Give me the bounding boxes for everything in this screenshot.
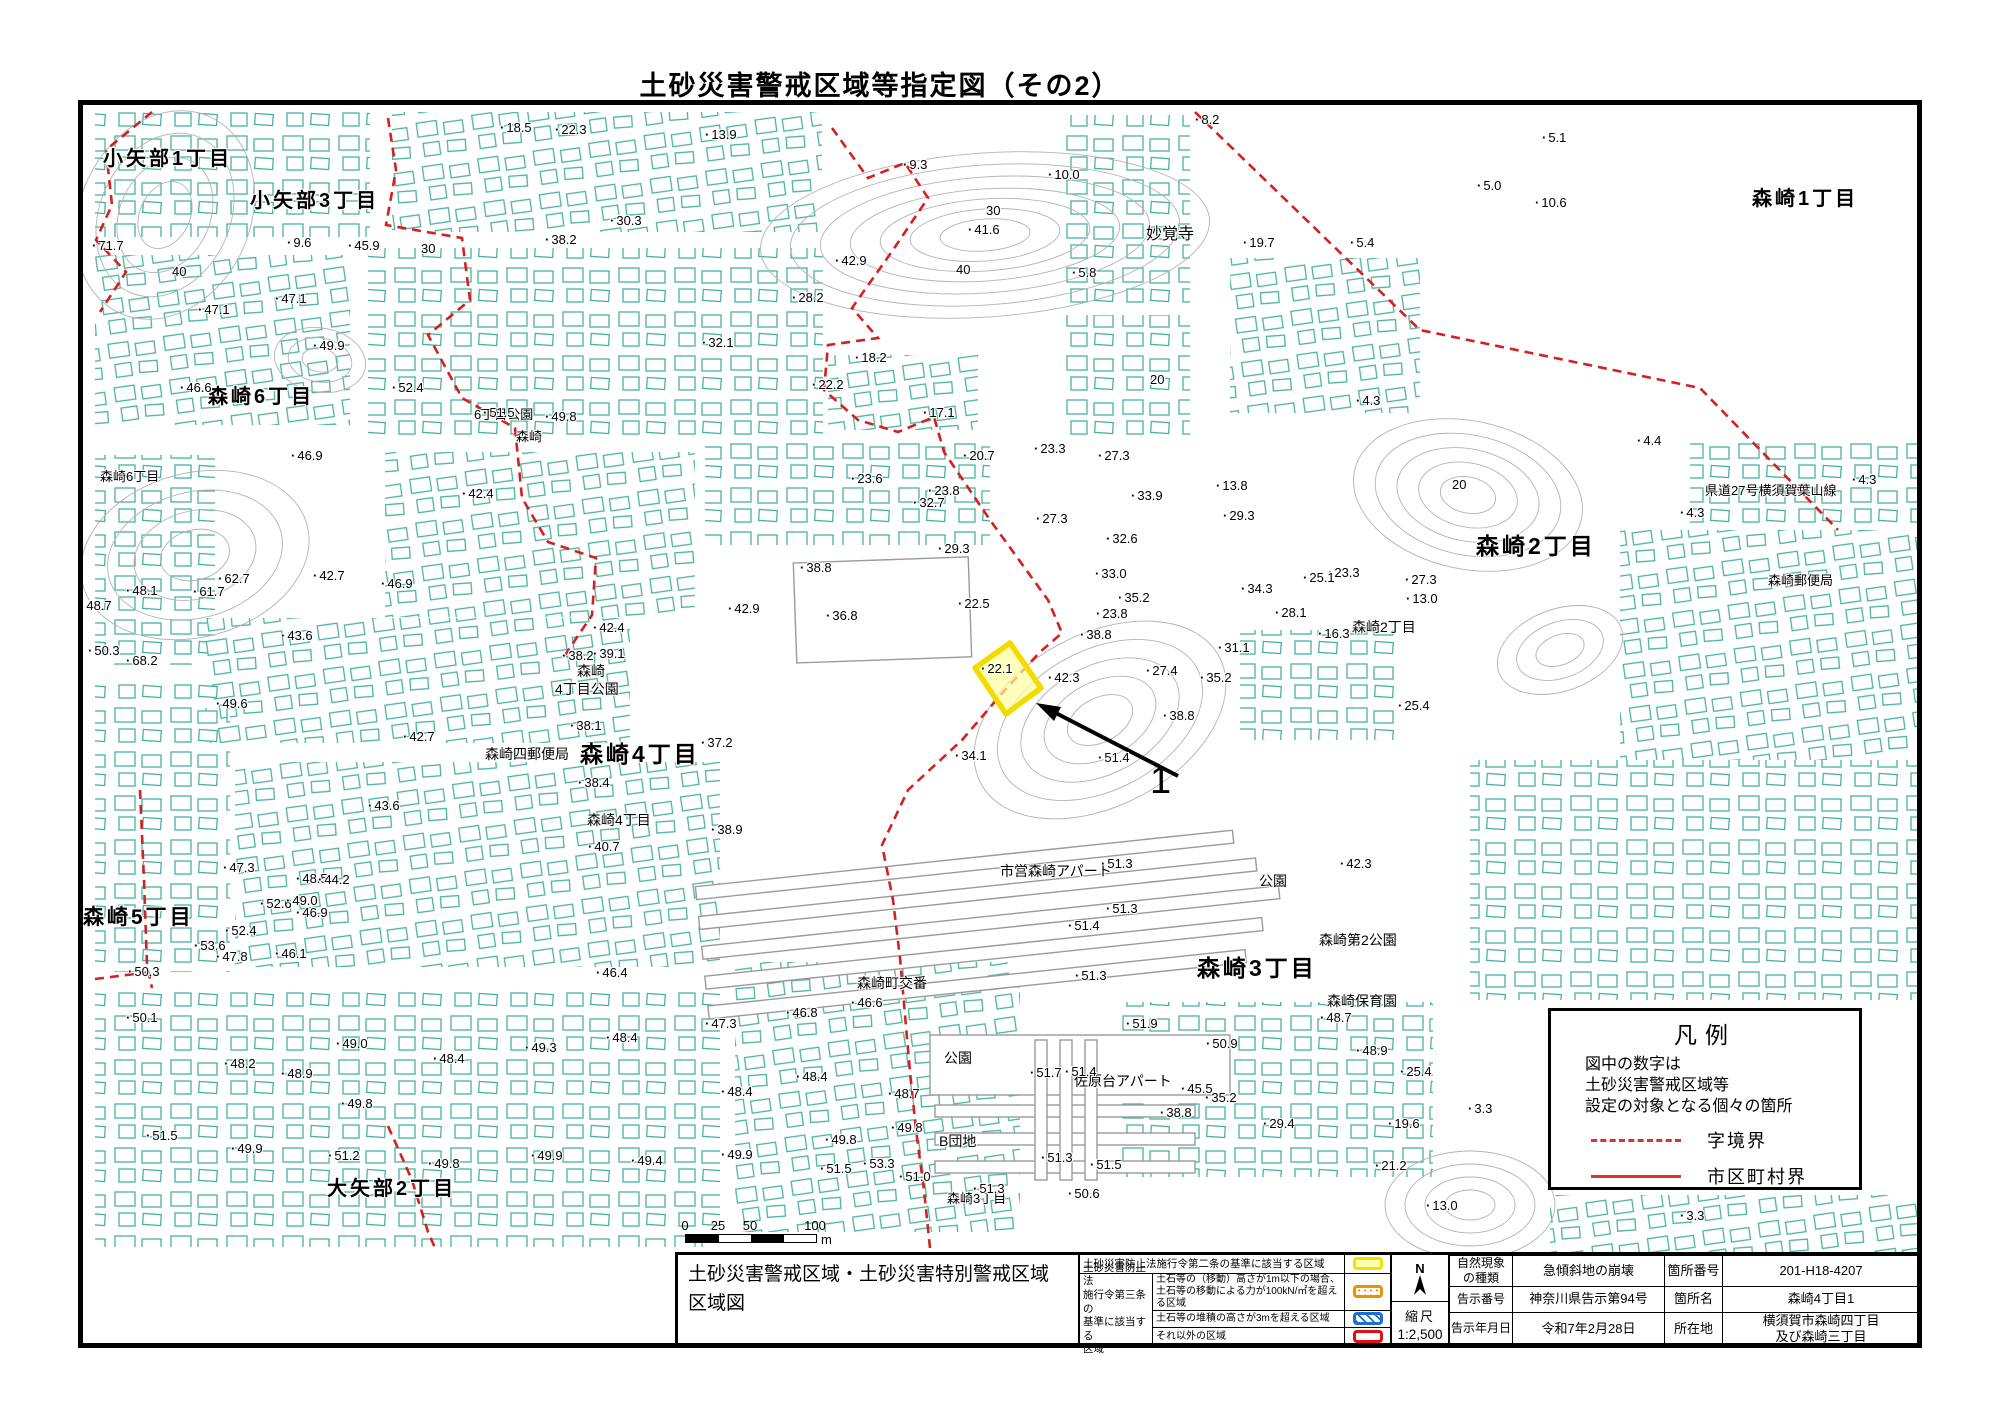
spot-height-label: 50.9 xyxy=(1206,1036,1238,1051)
spot-height-label: 48.7 xyxy=(80,598,112,613)
spot-height-label: 48.9 xyxy=(281,1066,313,1081)
scale-segment xyxy=(784,1235,817,1242)
place-label: 市営森崎アパート xyxy=(1000,864,1112,879)
footer-title-line2: 区域図 xyxy=(688,1289,1068,1318)
legend-item: 市区町村界 xyxy=(1591,1163,1859,1189)
spot-height-label: 32.1 xyxy=(702,335,734,350)
map-labels-layer: 小矢部1丁目 小矢部3丁目 森崎1丁目 妙覚寺 森崎6丁目 森崎6丁目 6丁目公… xyxy=(0,0,2000,1414)
spot-height-label: 38.9 xyxy=(711,822,743,837)
spot-height-label: 46.9 xyxy=(381,576,413,591)
zone-row-swatch-cell xyxy=(1344,1310,1390,1328)
info-key-cell: 告示年月日 xyxy=(1450,1312,1512,1346)
spot-height-label: 22.2 xyxy=(812,377,844,392)
place-label: 大矢部2丁目 xyxy=(327,1178,456,1200)
scale-segment xyxy=(686,1235,719,1242)
place-label: 森崎3丁目 xyxy=(1197,956,1317,981)
spot-height-label: 51.7 xyxy=(1030,1065,1062,1080)
place-label: 森崎6丁目 xyxy=(100,470,159,484)
spot-height-label: 49.6 xyxy=(216,696,248,711)
north-arrow-icon xyxy=(1412,1275,1428,1295)
spot-height-label: 53.3 xyxy=(863,1156,895,1171)
place-label: 森崎6丁目 xyxy=(208,386,314,408)
spot-height-label: 13.0 xyxy=(1406,591,1438,606)
spot-height-label: 47.8 xyxy=(216,949,248,964)
place-label: 県道27号横須賀葉山線 xyxy=(1705,484,1836,498)
spot-height-label: 34.3 xyxy=(1241,581,1273,596)
spot-height-label: 48.2 xyxy=(224,1056,256,1071)
spot-height-label: 40.7 xyxy=(588,839,620,854)
zone-row-swatch-cell xyxy=(1344,1327,1390,1345)
page-title: 土砂災害警戒区域等指定図（その2） xyxy=(620,64,1140,103)
spot-height-label: 43.6 xyxy=(281,628,313,643)
info-value-cell: 横須賀市森崎四丁目 及び森崎三丁目 xyxy=(1722,1312,1919,1346)
scale-tick-label: 50 xyxy=(743,1218,757,1233)
spot-height-label: 42.3 xyxy=(1048,670,1080,685)
info-value-cell: 急傾斜地の崩壊 xyxy=(1512,1255,1664,1286)
scale-tick-label: 0 xyxy=(681,1218,688,1233)
spot-height-label: 49.8 xyxy=(825,1132,857,1147)
spot-height-label: 9.6 xyxy=(287,235,311,250)
spot-height-label: 50.1 xyxy=(126,1010,158,1025)
spot-height-label: 5.8 xyxy=(1072,265,1096,280)
footer-title-cell: 土砂災害警戒区域・土砂災害特別警戒区域 区域図 xyxy=(678,1255,1080,1345)
spot-height-label: 52.4 xyxy=(392,380,424,395)
spot-height-label: 48.4 xyxy=(433,1051,465,1066)
spot-height-label: 42.7 xyxy=(313,568,345,583)
place-label: 森崎2丁目 xyxy=(1476,534,1596,559)
scale-bar: 0 25 50 100 m xyxy=(683,1218,903,1252)
info-value-cell: 201-H18-4207 xyxy=(1722,1255,1919,1286)
spot-height-label: 42.3 xyxy=(1340,856,1372,871)
spot-height-label: 39.1 xyxy=(593,646,625,661)
spot-height-label: 51.3 xyxy=(1101,856,1133,871)
spot-height-label: 38.8 xyxy=(1080,627,1112,642)
info-key-cell: 自然現象 の種類 xyxy=(1450,1255,1512,1286)
spot-height-label: 29.3 xyxy=(938,541,970,556)
zone-swatch xyxy=(1353,1312,1383,1325)
scale-segment xyxy=(751,1235,784,1242)
place-label: 小矢部1丁目 xyxy=(103,148,232,170)
spot-height-label: 29.3 xyxy=(1223,508,1255,523)
spot-height-label: 45.9 xyxy=(348,238,380,253)
spot-height-label: 37.2 xyxy=(701,735,733,750)
legend-title: 凡例 xyxy=(1551,1016,1859,1050)
spot-height-label: 51.3 xyxy=(973,1181,1005,1196)
spot-height-label: 50.6 xyxy=(1068,1186,1100,1201)
spot-height-label: 28.2 xyxy=(792,290,824,305)
spot-height-label: 27.3 xyxy=(1036,511,1068,526)
spot-height-label: 47.3 xyxy=(223,860,255,875)
spot-height-label: 49.9 xyxy=(313,338,345,353)
spot-height-label: 46.8 xyxy=(786,1005,818,1020)
spot-height-label: 31.1 xyxy=(1218,640,1250,655)
spot-height-label: 4.4 xyxy=(1637,433,1661,448)
spot-height-label: 38.8 xyxy=(1160,1105,1192,1120)
spot-height-label: 5.1 xyxy=(1542,130,1566,145)
scale-value: 1:2,500 xyxy=(1397,1327,1442,1342)
place-label: 森崎1丁目 xyxy=(1752,188,1858,210)
scale-bar-segments xyxy=(685,1234,817,1243)
spot-height-label: 47.1 xyxy=(198,302,230,317)
spot-height-label: 30 xyxy=(986,203,1000,218)
spot-height-label: 32.6 xyxy=(1106,531,1138,546)
place-label: 森崎5丁目 xyxy=(83,906,194,929)
spot-height-label: 17.1 xyxy=(923,405,955,420)
spot-height-label: 35.2 xyxy=(1205,1090,1237,1105)
notice-info-table: 自然現象 の種類 急傾斜地の崩壊 箇所番号 201-H18-4207 告示番号 … xyxy=(1450,1255,1919,1345)
spot-height-label: 27.3 xyxy=(1405,572,1437,587)
place-label: 森崎第2公園 xyxy=(1319,933,1397,948)
spot-height-label: 4.3 xyxy=(1356,393,1380,408)
info-key-cell: 告示番号 xyxy=(1450,1286,1512,1312)
legend-item: 字境界 xyxy=(1591,1127,1859,1153)
spot-height-label: 47.1 xyxy=(275,291,307,306)
spot-height-label: 13.9 xyxy=(705,127,737,142)
legend-item-label: 市区町村界 xyxy=(1707,1163,1807,1189)
zone-legend: 土砂災害防止法施行令第二条の基準に該当する区域 土砂災害防止法 施行令第三条の … xyxy=(1080,1255,1392,1345)
spot-height-label: 42.4 xyxy=(593,620,625,635)
spot-height-label: 5.0 xyxy=(1477,178,1501,193)
spot-height-label: 46.9 xyxy=(296,905,328,920)
spot-height-label: 22.1 xyxy=(981,661,1013,676)
spot-height-label: 51.3 xyxy=(1075,968,1107,983)
spot-height-label: 61.7 xyxy=(193,584,225,599)
spot-height-label: 25.4 xyxy=(1398,698,1430,713)
spot-height-label: 49.4 xyxy=(631,1153,663,1168)
spot-height-label: 42.7 xyxy=(403,729,435,744)
spot-height-label: 35.2 xyxy=(1200,670,1232,685)
zone-swatch-yellow xyxy=(1353,1257,1383,1270)
footer-table: 土砂災害警戒区域・土砂災害特別警戒区域 区域図 土砂災害防止法施行令第二条の基準… xyxy=(675,1252,1922,1348)
place-label: B団地 xyxy=(939,1134,976,1149)
info-value-cell: 森崎4丁目1 xyxy=(1722,1286,1919,1312)
spot-height-label: 19.7 xyxy=(1243,235,1275,250)
spot-height-label: 48.4 xyxy=(606,1030,638,1045)
spot-height-label: 51.4 xyxy=(1068,918,1100,933)
spot-height-label: 13.8 xyxy=(1216,478,1248,493)
zone-swatch xyxy=(1353,1285,1383,1298)
spot-height-label: 49.9 xyxy=(531,1148,563,1163)
spot-height-label: 36.8 xyxy=(826,608,858,623)
place-label: 森崎町交番 xyxy=(857,976,927,991)
zone-group-label: 土砂災害防止法 施行令第三条の 基準に該当する 区域 xyxy=(1080,1273,1152,1345)
spot-height-label: 25.4 xyxy=(1400,1064,1432,1079)
scale-tick-label: 25 xyxy=(711,1218,725,1233)
spot-height-label: 40 xyxy=(956,262,970,277)
spot-height-label: 51.5 xyxy=(820,1161,852,1176)
spot-height-label: 46.6 xyxy=(851,995,883,1010)
spot-height-label: 46.4 xyxy=(596,965,628,980)
spot-height-label: 5.4 xyxy=(1350,235,1374,250)
spot-height-label: 18.2 xyxy=(855,350,887,365)
scale-unit: m xyxy=(821,1232,832,1247)
place-label: 森崎4丁目 xyxy=(580,742,700,767)
info-value-cell: 令和7年2月28日 xyxy=(1512,1312,1664,1346)
spot-height-label: 68.2 xyxy=(126,653,158,668)
spot-height-label: 38.1 xyxy=(570,718,602,733)
place-label: 森崎郵便局 xyxy=(1768,574,1833,588)
place-label: 妙覚寺 xyxy=(1146,226,1194,244)
spot-height-label: 49.8 xyxy=(428,1156,460,1171)
spot-height-label: 42.9 xyxy=(728,601,760,616)
spot-height-label: 49.9 xyxy=(721,1147,753,1162)
spot-height-label: 43.6 xyxy=(368,798,400,813)
footer-title-line1: 土砂災害警戒区域・土砂災害特別警戒区域 xyxy=(688,1260,1068,1289)
scale-segment xyxy=(719,1235,752,1242)
spot-height-label: 51.9 xyxy=(1126,1016,1158,1031)
place-label: 森崎 xyxy=(516,430,542,444)
zone-row-label: 土石等の堆積の高さが3mを超える区域 xyxy=(1152,1310,1344,1328)
spot-height-label: 16.3 xyxy=(1318,626,1350,641)
spot-height-label: 9.3 xyxy=(903,157,927,172)
spot-height-label: 23.3 xyxy=(1034,441,1066,456)
spot-height-label: 51.4 xyxy=(1065,1064,1097,1079)
legend-line-sample xyxy=(1591,1139,1681,1142)
spot-height-label: 22.3 xyxy=(555,122,587,137)
legend-note: 図中の数字は 土砂災害警戒区域等 設定の対象となる個々の箇所 xyxy=(1585,1054,1859,1117)
scale-tick-label: 100 xyxy=(804,1218,826,1233)
spot-height-label: 50.3 xyxy=(128,964,160,979)
spot-height-label: 38.2 xyxy=(562,648,594,663)
spot-height-label: 8.2 xyxy=(1195,112,1219,127)
spot-height-label: 3.3 xyxy=(1468,1101,1492,1116)
info-key-cell: 箇所番号 xyxy=(1664,1255,1722,1286)
spot-height-label: 21.2 xyxy=(1375,1158,1407,1173)
spot-height-label: 48.4 xyxy=(796,1069,828,1084)
spot-height-label: 30.3 xyxy=(610,213,642,228)
spot-height-label: 27.3 xyxy=(1098,448,1130,463)
spot-height-label: 48.7 xyxy=(1320,1010,1352,1025)
zone-row1-swatch-cell xyxy=(1344,1255,1390,1273)
place-label: 公園 xyxy=(944,1051,972,1066)
spot-height-label: 20 xyxy=(1452,477,1466,492)
spot-height-label: 49.3 xyxy=(525,1040,557,1055)
spot-height-label: 51.5 xyxy=(483,405,515,420)
spot-height-label: 38.4 xyxy=(578,775,610,790)
zone-row-swatch-cell xyxy=(1344,1273,1390,1310)
spot-height-label: 49.9 xyxy=(231,1141,263,1156)
spot-height-label: 48.9 xyxy=(1356,1043,1388,1058)
spot-height-label: 20.7 xyxy=(963,448,995,463)
spot-height-label: 38.8 xyxy=(1163,708,1195,723)
spot-height-label: 42.4 xyxy=(462,486,494,501)
spot-height-label: 48.1 xyxy=(126,583,158,598)
spot-height-label: 51.5 xyxy=(146,1128,178,1143)
place-label: 森崎2丁目 xyxy=(1352,620,1416,635)
spot-height-label: 22.5 xyxy=(958,596,990,611)
spot-height-label: 48.7 xyxy=(888,1086,920,1101)
info-value-cell: 神奈川県告示第94号 xyxy=(1512,1286,1664,1312)
spot-height-label: 20 xyxy=(1150,372,1164,387)
north-indicator: N xyxy=(1392,1255,1448,1302)
spot-height-label: 71.7 xyxy=(92,238,124,253)
spot-height-label: 19.6 xyxy=(1388,1116,1420,1131)
spot-height-label: 34.1 xyxy=(955,748,987,763)
legend-item-list: 字境界 市区町村界 xyxy=(1551,1127,1859,1189)
spot-height-label: 10.6 xyxy=(1535,195,1567,210)
zone-row-label: それ以外の区域 xyxy=(1152,1327,1344,1345)
spot-height-label: 51.2 xyxy=(328,1148,360,1163)
spot-height-label: 49.8 xyxy=(545,409,577,424)
info-key-cell: 箇所名 xyxy=(1664,1286,1722,1312)
spot-height-label: 4.3 xyxy=(1852,472,1876,487)
zone-row-label: 土石等の（移動）高さが1m以下の場合、 土石等の移動による力が100kN/㎡を超… xyxy=(1152,1273,1344,1310)
spot-height-label: 51.4 xyxy=(1098,750,1130,765)
spot-height-label: 25.1 xyxy=(1303,570,1335,585)
spot-height-label: 46.9 xyxy=(291,448,323,463)
spot-height-label: 49.0 xyxy=(336,1036,368,1051)
spot-height-label: 51.5 xyxy=(1090,1157,1122,1172)
spot-height-label: 44.2 xyxy=(318,872,350,887)
scale-label: 縮尺 xyxy=(1405,1306,1435,1325)
zone-swatch xyxy=(1353,1330,1383,1343)
spot-height-label: 46.1 xyxy=(275,946,307,961)
place-label: 4丁目公園 xyxy=(555,682,619,697)
spot-height-label: 47.3 xyxy=(705,1016,737,1031)
north-label: N xyxy=(1415,1262,1424,1275)
spot-height-label: 18.5 xyxy=(500,120,532,135)
spot-height-label: 50.3 xyxy=(88,643,120,658)
info-key-cell: 所在地 xyxy=(1664,1312,1722,1346)
legend-line-sample xyxy=(1591,1175,1681,1178)
spot-height-label: 33.9 xyxy=(1131,488,1163,503)
spot-height-label: 42.9 xyxy=(835,253,867,268)
spot-height-label: 29.4 xyxy=(1263,1116,1295,1131)
place-label: 公園 xyxy=(1259,874,1287,889)
map-legend-box: 凡例 図中の数字は 土砂災害警戒区域等 設定の対象となる個々の箇所 字境界 市区… xyxy=(1548,1008,1862,1190)
spot-height-label: 27.4 xyxy=(1146,663,1178,678)
spot-height-label: 13.0 xyxy=(1426,1198,1458,1213)
spot-height-label: 49.8 xyxy=(891,1120,923,1135)
place-label: 森崎4丁目 xyxy=(587,813,651,828)
spot-height-label: 62.7 xyxy=(218,571,250,586)
spot-height-label: 28.1 xyxy=(1275,605,1307,620)
spot-height-label: 48.4 xyxy=(721,1084,753,1099)
spot-height-label: 41.6 xyxy=(968,222,1000,237)
spot-height-label: 38.8 xyxy=(800,560,832,575)
spot-height-label: 4.3 xyxy=(1680,505,1704,520)
spot-height-label: 23.8 xyxy=(928,483,960,498)
spot-height-label: 40 xyxy=(172,264,186,279)
spot-height-label: 35.2 xyxy=(1118,590,1150,605)
scale-cell: 縮尺 1:2,500 xyxy=(1392,1302,1448,1345)
spot-height-label: 38.2 xyxy=(545,232,577,247)
spot-height-label: 23.6 xyxy=(851,471,883,486)
spot-height-label: 52.4 xyxy=(225,923,257,938)
spot-height-label: 51.3 xyxy=(1106,901,1138,916)
place-label: 森崎四郵便局 xyxy=(485,747,569,762)
spot-height-label: 33.0 xyxy=(1095,566,1127,581)
spot-height-label: 46.6 xyxy=(180,380,212,395)
place-label: 森崎保育園 xyxy=(1327,994,1397,1009)
north-scale-cell: N 縮尺 1:2,500 xyxy=(1392,1255,1450,1345)
spot-height-label: 10.0 xyxy=(1048,167,1080,182)
legend-item-label: 字境界 xyxy=(1707,1127,1767,1153)
spot-height-label: 23.8 xyxy=(1096,606,1128,621)
place-label: 小矢部3丁目 xyxy=(250,190,379,212)
spot-height-label: 51.0 xyxy=(899,1169,931,1184)
spot-height-label: 30 xyxy=(421,241,435,256)
spot-height-label: 3.3 xyxy=(1680,1208,1704,1223)
spot-height-label: 49.8 xyxy=(341,1096,373,1111)
spot-height-label: 51.3 xyxy=(1041,1150,1073,1165)
place-label: 森崎 xyxy=(577,664,605,679)
